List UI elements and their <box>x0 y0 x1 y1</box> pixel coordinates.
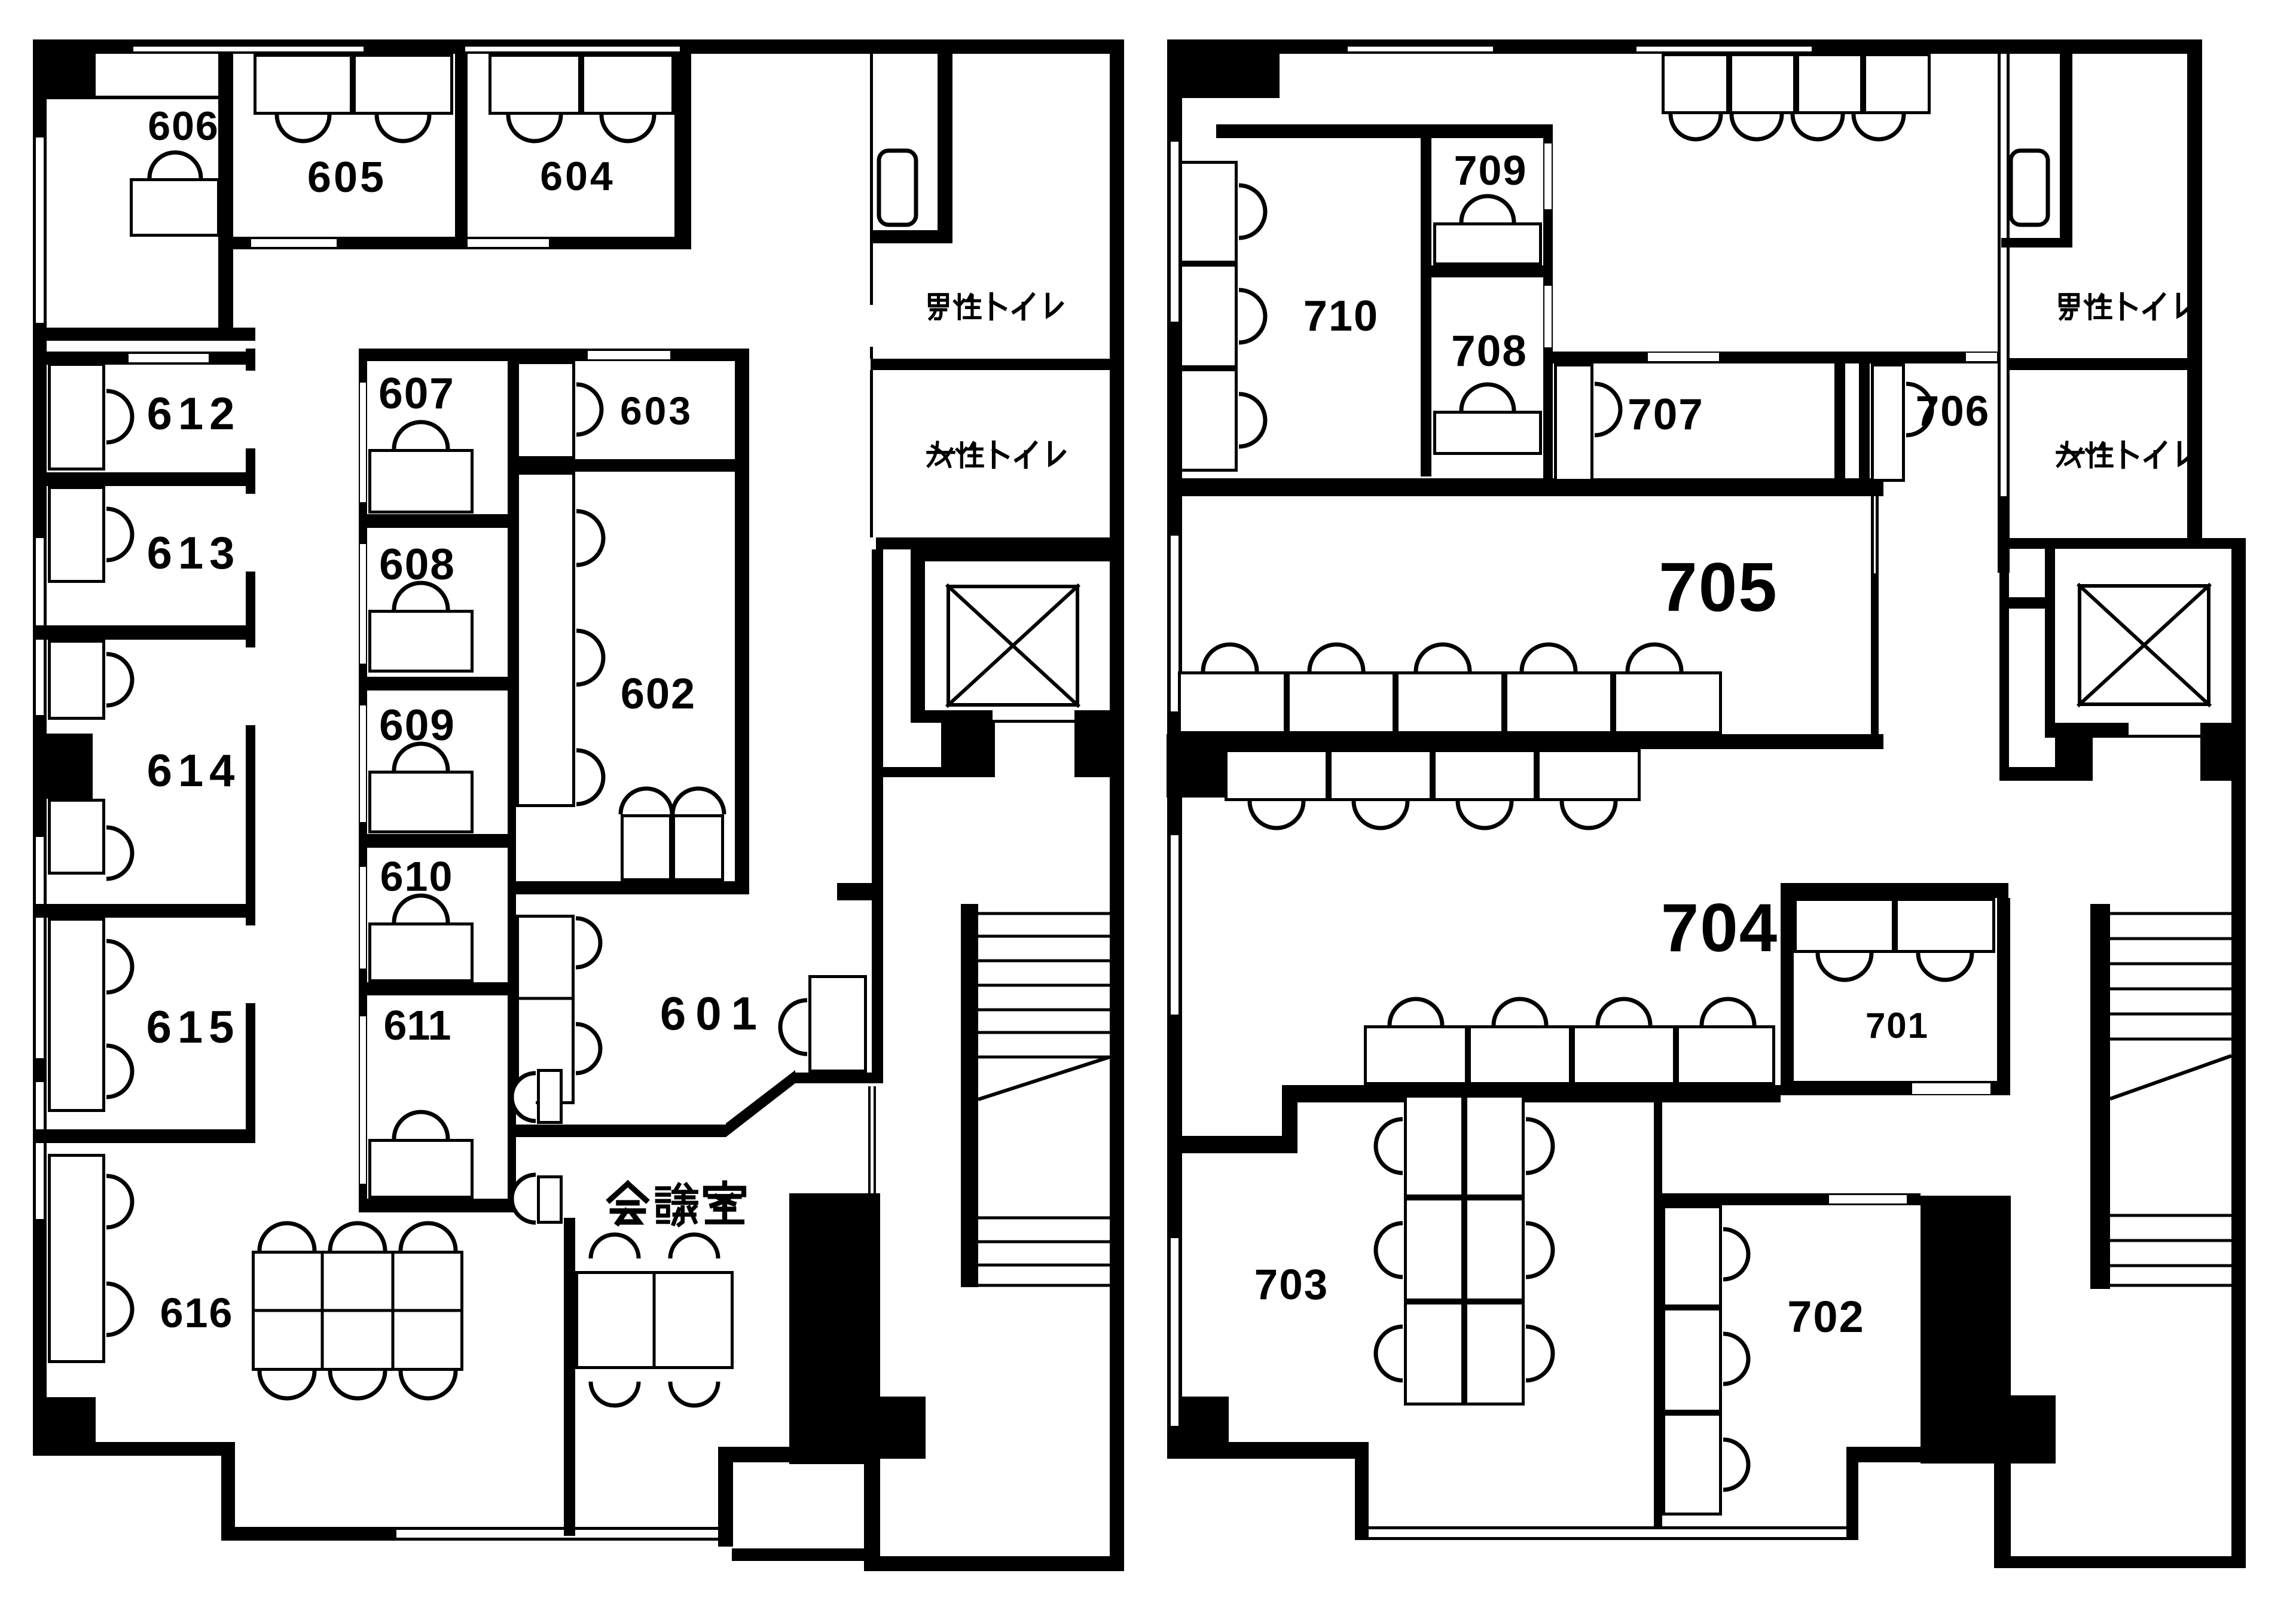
svg-text:613: 613 <box>147 528 241 579</box>
svg-text:602: 602 <box>621 670 696 718</box>
svg-text:707: 707 <box>1628 390 1704 439</box>
svg-text:607: 607 <box>378 369 455 418</box>
svg-text:601: 601 <box>660 987 767 1040</box>
svg-text:615: 615 <box>146 1002 240 1053</box>
svg-text:605: 605 <box>307 154 386 201</box>
svg-text:614: 614 <box>147 746 241 796</box>
svg-text:703: 703 <box>1254 1261 1329 1309</box>
svg-text:706: 706 <box>1916 388 1990 435</box>
svg-text:701: 701 <box>1865 1006 1929 1046</box>
svg-text:603: 603 <box>620 389 693 433</box>
svg-text:710: 710 <box>1303 292 1379 340</box>
svg-text:612: 612 <box>147 389 241 439</box>
svg-text:610: 610 <box>380 853 454 900</box>
svg-text:704: 704 <box>1661 890 1778 966</box>
svg-text:608: 608 <box>379 540 456 589</box>
svg-text:611: 611 <box>384 1002 451 1049</box>
svg-text:705: 705 <box>1659 548 1778 626</box>
svg-text:616: 616 <box>160 1290 234 1336</box>
svg-text:708: 708 <box>1451 327 1528 375</box>
svg-text:709: 709 <box>1454 147 1528 194</box>
svg-text:606: 606 <box>148 103 219 149</box>
svg-text:604: 604 <box>540 154 615 199</box>
svg-text:702: 702 <box>1787 1292 1864 1342</box>
svg-text:609: 609 <box>379 701 456 750</box>
